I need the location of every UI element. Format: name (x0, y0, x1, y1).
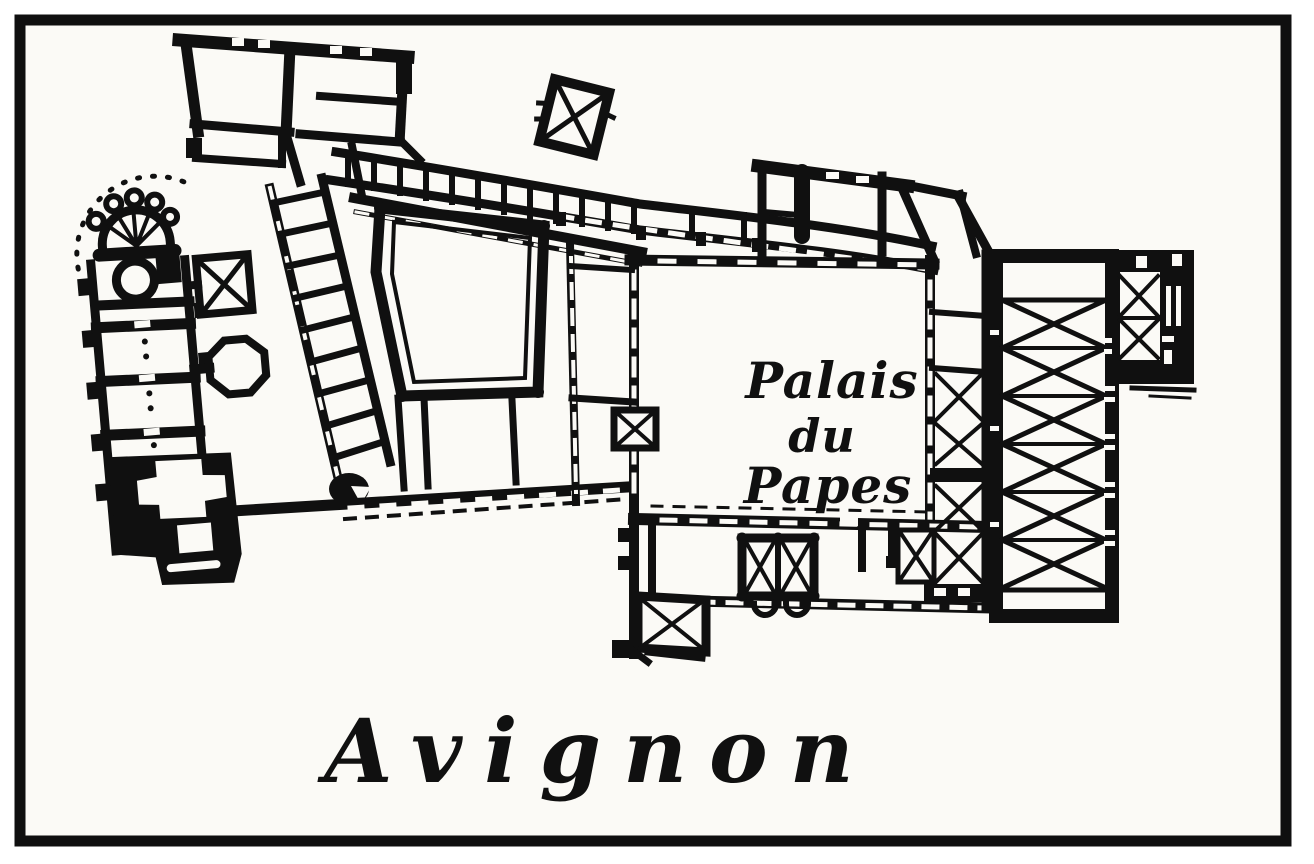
avignon-caption: Avignon (317, 699, 875, 803)
avignon-floor-plan: Palais du Papes Avignon (0, 0, 1314, 864)
engraved-plan-page: Palais du Papes Avignon (0, 0, 1314, 864)
east-annex (1112, 250, 1194, 398)
octagonal-chapel (207, 337, 267, 396)
label-line-2: du (788, 409, 856, 463)
label-line-1: Palais (743, 351, 918, 410)
label-line-3: Papes (742, 456, 913, 515)
great-chapel-gallery (990, 256, 1115, 616)
